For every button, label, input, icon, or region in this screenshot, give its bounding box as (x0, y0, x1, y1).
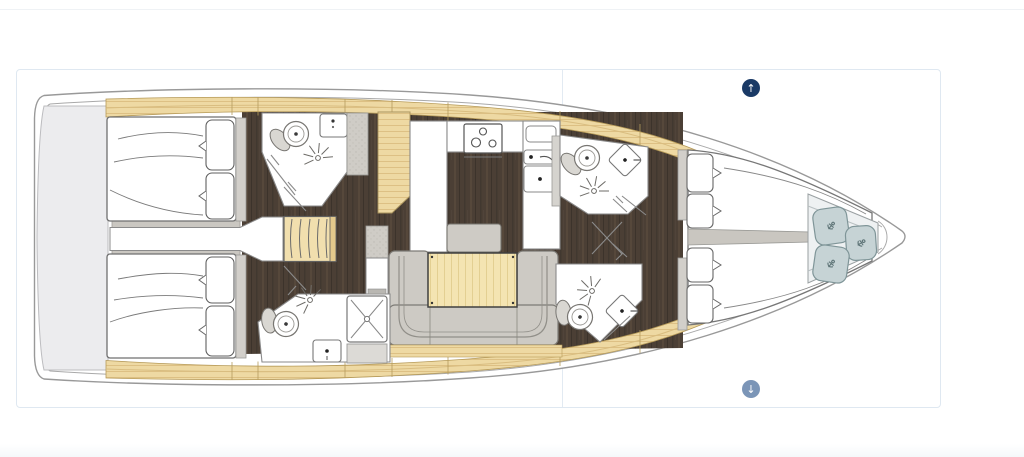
aft-cabin-starboard (107, 254, 246, 358)
up-arrow-icon: ↑ (746, 83, 755, 94)
companionway-stairs (284, 217, 336, 262)
locker-galley-aft (378, 112, 410, 213)
salon-locker (366, 226, 388, 258)
down-arrow-icon: ↓ (746, 384, 755, 395)
swim-platform (37, 106, 108, 370)
flip-up-button[interactable]: ↑ (742, 79, 760, 97)
footer-bar (0, 444, 1024, 457)
flip-down-button[interactable]: ↓ (742, 380, 760, 398)
deck-plan-canvas (0, 0, 1024, 457)
aft-cabin-port (107, 117, 246, 221)
salon-table (428, 253, 517, 307)
yacht-configurator-viewport: ↑ ↓ (0, 0, 1024, 457)
